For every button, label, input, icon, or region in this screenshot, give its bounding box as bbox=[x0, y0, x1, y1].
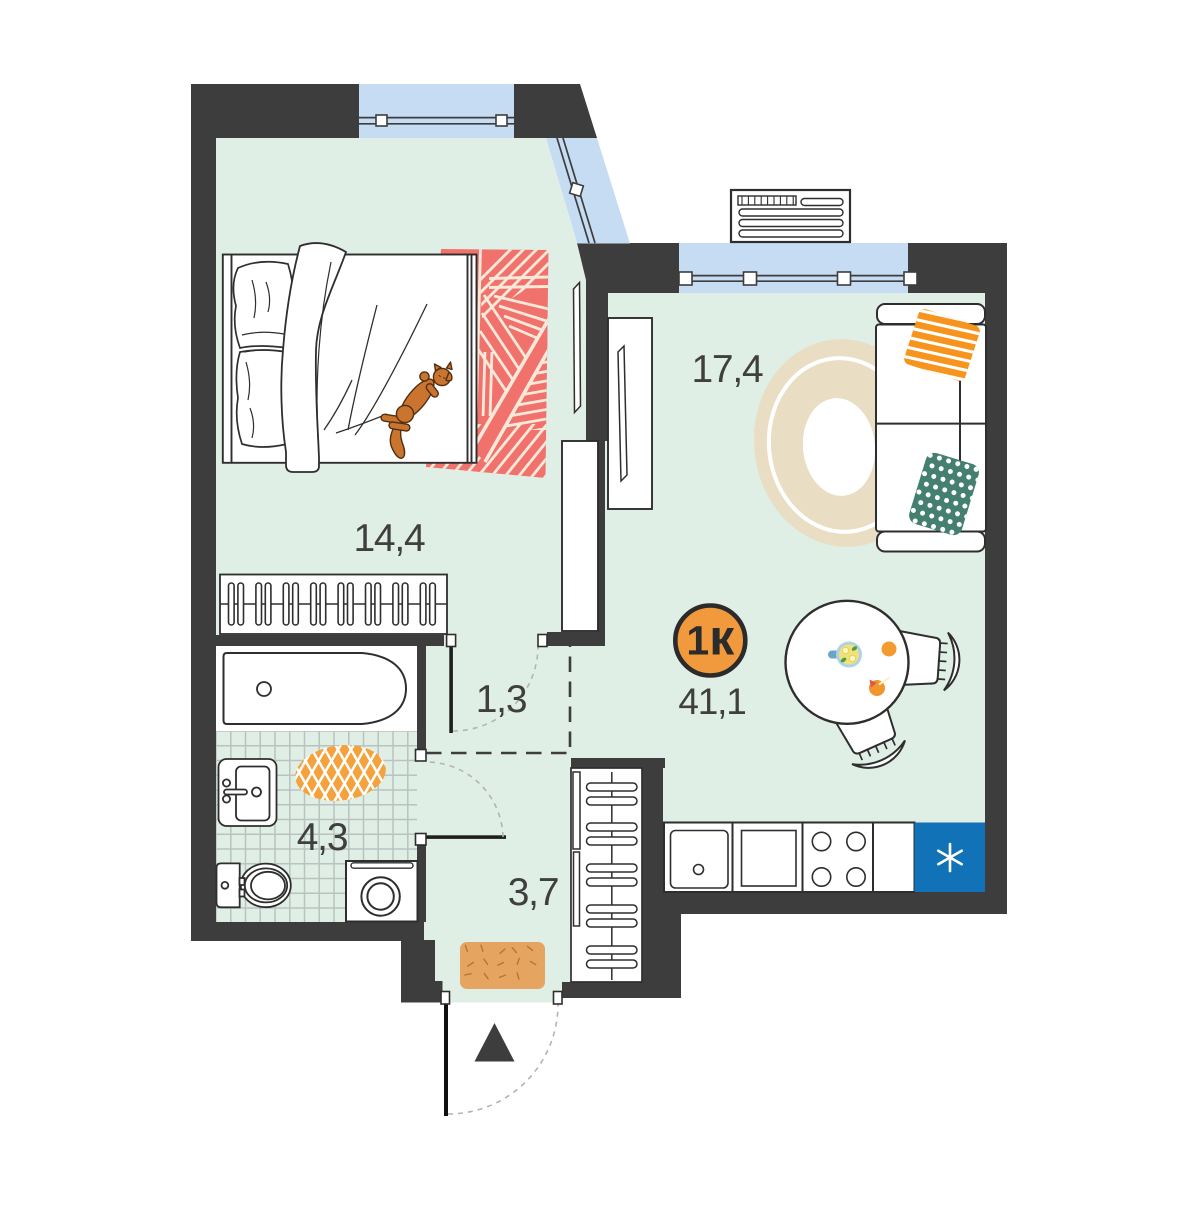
svg-text:14,4: 14,4 bbox=[353, 517, 425, 560]
svg-text:3,7: 3,7 bbox=[508, 871, 559, 914]
svg-text:1,3: 1,3 bbox=[476, 678, 527, 721]
svg-text:41,1: 41,1 bbox=[678, 681, 745, 722]
svg-text:17,4: 17,4 bbox=[691, 348, 763, 391]
svg-text:1к: 1к bbox=[686, 610, 735, 666]
svg-text:4,3: 4,3 bbox=[297, 816, 348, 859]
